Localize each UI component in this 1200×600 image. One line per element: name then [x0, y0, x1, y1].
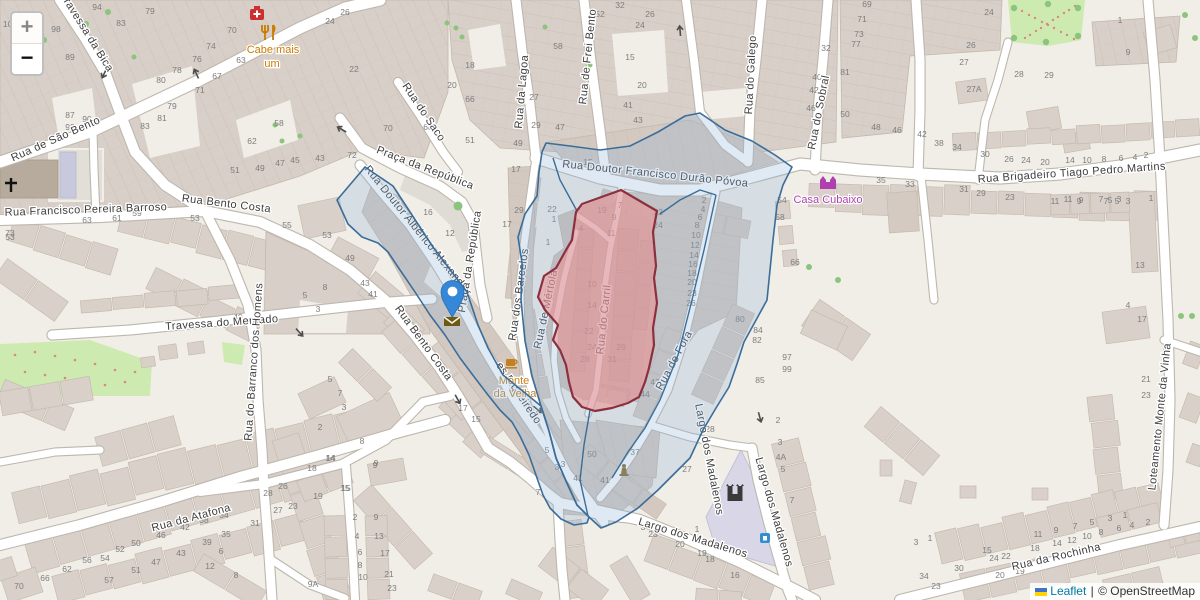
svg-text:52: 52	[115, 544, 125, 554]
svg-text:84: 84	[753, 325, 763, 335]
svg-text:35: 35	[221, 529, 231, 539]
svg-text:3: 3	[316, 304, 321, 314]
svg-text:26: 26	[645, 9, 655, 19]
svg-text:15: 15	[341, 483, 351, 493]
svg-text:3: 3	[342, 402, 347, 412]
svg-text:um: um	[264, 58, 279, 70]
svg-text:10: 10	[1082, 155, 1092, 165]
svg-text:3: 3	[1126, 196, 1131, 206]
svg-text:69: 69	[862, 0, 872, 9]
svg-text:38: 38	[934, 138, 944, 148]
svg-text:18: 18	[307, 463, 317, 473]
svg-text:5: 5	[781, 464, 786, 474]
svg-text:9: 9	[1054, 525, 1059, 535]
svg-text:72: 72	[347, 150, 357, 160]
svg-text:56: 56	[82, 555, 92, 565]
svg-text:15: 15	[982, 545, 992, 555]
svg-text:30: 30	[954, 563, 964, 573]
svg-text:79: 79	[145, 6, 155, 16]
svg-text:3: 3	[1108, 513, 1113, 523]
svg-text:1: 1	[1149, 193, 1154, 203]
svg-text:23: 23	[1141, 390, 1151, 400]
svg-text:6: 6	[1117, 523, 1122, 533]
svg-text:23: 23	[288, 501, 298, 511]
svg-text:32: 32	[615, 0, 625, 10]
svg-text:58: 58	[274, 118, 284, 128]
svg-text:4A: 4A	[776, 452, 787, 462]
svg-text:82: 82	[752, 335, 762, 345]
svg-text:20: 20	[637, 80, 647, 90]
svg-text:17: 17	[502, 219, 512, 229]
svg-text:71: 71	[857, 14, 867, 24]
svg-text:41: 41	[623, 100, 633, 110]
svg-text:5: 5	[328, 374, 333, 384]
svg-text:5: 5	[1115, 196, 1120, 206]
svg-text:97: 97	[782, 352, 792, 362]
svg-text:24: 24	[984, 7, 994, 17]
svg-text:5: 5	[303, 290, 308, 300]
svg-text:27: 27	[273, 505, 283, 515]
svg-text:50: 50	[840, 109, 850, 119]
svg-text:13: 13	[1135, 260, 1145, 270]
svg-text:15: 15	[471, 414, 481, 424]
svg-text:4: 4	[1130, 520, 1135, 530]
svg-text:Casa Cubaixo: Casa Cubaixo	[793, 194, 862, 206]
svg-text:83: 83	[116, 18, 126, 28]
svg-text:89: 89	[65, 52, 75, 62]
svg-text:53: 53	[322, 230, 332, 240]
svg-text:10: 10	[1082, 531, 1092, 541]
svg-text:6: 6	[1119, 153, 1124, 163]
svg-text:34: 34	[919, 571, 929, 581]
svg-text:1: 1	[1123, 510, 1128, 520]
svg-text:78: 78	[172, 65, 182, 75]
svg-text:42: 42	[917, 129, 927, 139]
svg-text:27: 27	[682, 464, 692, 474]
svg-text:19: 19	[313, 491, 323, 501]
svg-text:66: 66	[40, 573, 50, 583]
svg-text:51: 51	[131, 565, 141, 575]
svg-text:30: 30	[980, 149, 990, 159]
svg-text:7: 7	[1104, 196, 1109, 206]
svg-text:70: 70	[383, 123, 393, 133]
svg-text:17: 17	[380, 548, 390, 558]
svg-text:6: 6	[219, 546, 224, 556]
svg-text:4: 4	[1133, 152, 1138, 162]
svg-text:9: 9	[1126, 47, 1131, 57]
svg-text:2: 2	[1144, 150, 1149, 160]
svg-text:8: 8	[323, 282, 328, 292]
svg-text:17: 17	[1137, 314, 1147, 324]
svg-text:28: 28	[1014, 69, 1024, 79]
svg-text:33: 33	[905, 179, 915, 189]
svg-text:43: 43	[176, 548, 186, 558]
svg-text:73: 73	[854, 29, 864, 39]
svg-text:46: 46	[892, 125, 902, 135]
svg-text:31: 31	[250, 518, 260, 528]
svg-text:43: 43	[633, 115, 643, 125]
svg-text:29: 29	[514, 205, 524, 215]
svg-text:1: 1	[928, 533, 933, 543]
svg-text:5: 5	[1108, 195, 1113, 205]
svg-text:83: 83	[140, 121, 150, 131]
svg-text:27A: 27A	[966, 84, 981, 94]
svg-text:14: 14	[1065, 155, 1075, 165]
svg-text:2: 2	[776, 415, 781, 425]
svg-text:47: 47	[151, 557, 161, 567]
svg-text:63: 63	[236, 55, 246, 65]
svg-text:35: 35	[876, 175, 886, 185]
svg-text:18: 18	[1030, 543, 1040, 553]
svg-text:41: 41	[368, 289, 378, 299]
svg-text:51: 51	[230, 165, 240, 175]
svg-text:20: 20	[995, 570, 1005, 580]
svg-text:32: 32	[821, 43, 831, 53]
svg-text:62: 62	[62, 564, 72, 574]
svg-text:12: 12	[205, 561, 215, 571]
svg-text:51: 51	[465, 135, 475, 145]
svg-text:81: 81	[157, 113, 167, 123]
svg-text:10: 10	[358, 572, 368, 582]
svg-text:43: 43	[315, 153, 325, 163]
svg-text:70: 70	[227, 25, 237, 35]
svg-text:2: 2	[1146, 517, 1151, 527]
svg-text:29: 29	[531, 120, 541, 130]
svg-text:57: 57	[104, 575, 114, 585]
svg-text:4: 4	[355, 531, 360, 541]
svg-text:17: 17	[511, 164, 521, 174]
svg-text:12: 12	[445, 228, 455, 238]
svg-text:23: 23	[931, 581, 941, 591]
svg-text:20: 20	[447, 80, 457, 90]
svg-text:48: 48	[871, 122, 881, 132]
svg-text:55: 55	[282, 220, 292, 230]
svg-text:5: 5	[1090, 517, 1095, 527]
svg-text:11: 11	[1051, 196, 1060, 206]
svg-text:85: 85	[755, 375, 765, 385]
svg-text:47: 47	[275, 158, 285, 168]
svg-text:7: 7	[790, 495, 795, 505]
svg-text:14: 14	[326, 453, 336, 463]
svg-text:31: 31	[959, 184, 969, 194]
svg-text:27: 27	[529, 92, 539, 102]
svg-text:9: 9	[1077, 196, 1082, 206]
svg-text:2: 2	[353, 512, 358, 522]
svg-text:2: 2	[318, 422, 323, 432]
svg-text:63: 63	[82, 215, 92, 225]
svg-text:26: 26	[966, 40, 976, 50]
svg-text:22: 22	[1001, 551, 1011, 561]
svg-text:8: 8	[234, 570, 239, 580]
svg-text:54: 54	[100, 553, 110, 563]
svg-text:Cabe mais: Cabe mais	[247, 44, 300, 56]
svg-text:9A: 9A	[308, 579, 319, 589]
svg-text:6: 6	[358, 547, 363, 557]
svg-text:11: 11	[1034, 529, 1043, 539]
svg-text:94: 94	[92, 2, 102, 12]
svg-text:28: 28	[263, 488, 273, 498]
svg-text:18: 18	[465, 60, 475, 70]
svg-text:21: 21	[1141, 374, 1151, 384]
svg-text:12: 12	[1067, 535, 1077, 545]
svg-text:15: 15	[625, 52, 635, 62]
svg-text:8: 8	[360, 436, 365, 446]
svg-text:26: 26	[278, 481, 288, 491]
svg-text:27: 27	[959, 57, 969, 67]
svg-text:1: 1	[1118, 15, 1123, 25]
svg-text:81: 81	[840, 67, 850, 77]
svg-text:11: 11	[1064, 194, 1073, 204]
svg-text:3: 3	[778, 437, 783, 447]
svg-text:53: 53	[5, 232, 15, 242]
svg-text:99: 99	[782, 364, 792, 374]
svg-text:49: 49	[255, 163, 265, 173]
svg-text:39: 39	[202, 537, 212, 547]
svg-text:24: 24	[635, 20, 645, 30]
svg-text:70: 70	[14, 581, 24, 591]
svg-text:76: 76	[192, 54, 202, 64]
svg-text:26: 26	[1004, 154, 1014, 164]
svg-text:14: 14	[1052, 538, 1062, 548]
svg-text:16: 16	[423, 207, 433, 217]
svg-text:53: 53	[190, 213, 200, 223]
svg-text:22: 22	[349, 64, 359, 74]
svg-text:9: 9	[374, 458, 379, 468]
svg-text:34: 34	[952, 142, 962, 152]
svg-text:7: 7	[338, 388, 343, 398]
svg-text:29: 29	[976, 188, 986, 198]
svg-text:9: 9	[374, 512, 379, 522]
svg-text:26: 26	[340, 7, 350, 17]
svg-text:71: 71	[195, 85, 205, 95]
svg-text:4: 4	[1126, 300, 1131, 310]
svg-text:49: 49	[345, 253, 355, 263]
svg-text:16: 16	[730, 570, 740, 580]
svg-text:24: 24	[325, 16, 335, 26]
svg-text:67: 67	[212, 71, 222, 81]
svg-text:47: 47	[555, 122, 565, 132]
svg-text:8: 8	[1099, 527, 1104, 537]
svg-text:3: 3	[914, 537, 919, 547]
svg-text:87: 87	[65, 110, 75, 120]
svg-text:7: 7	[1073, 521, 1078, 531]
svg-text:49: 49	[513, 138, 523, 148]
svg-text:18: 18	[705, 554, 715, 564]
svg-text:29: 29	[1044, 70, 1054, 80]
svg-text:20: 20	[1040, 157, 1050, 167]
svg-text:74: 74	[206, 41, 216, 51]
svg-text:43: 43	[360, 278, 370, 288]
svg-text:17: 17	[458, 403, 468, 413]
svg-text:23: 23	[387, 583, 397, 593]
svg-text:13: 13	[374, 531, 384, 541]
svg-text:23: 23	[1005, 192, 1015, 202]
svg-text:8: 8	[358, 560, 363, 570]
svg-text:21: 21	[384, 569, 394, 579]
svg-text:62: 62	[247, 136, 257, 146]
svg-text:24: 24	[1021, 155, 1031, 165]
svg-text:79: 79	[167, 101, 177, 111]
svg-text:45: 45	[290, 155, 300, 165]
svg-text:77: 77	[851, 39, 861, 49]
svg-text:8: 8	[1102, 154, 1107, 164]
svg-text:66: 66	[790, 257, 800, 267]
svg-text:98: 98	[51, 24, 61, 34]
svg-text:66: 66	[465, 94, 475, 104]
svg-text:58: 58	[553, 41, 563, 51]
svg-text:50: 50	[131, 538, 141, 548]
svg-text:80: 80	[156, 75, 166, 85]
